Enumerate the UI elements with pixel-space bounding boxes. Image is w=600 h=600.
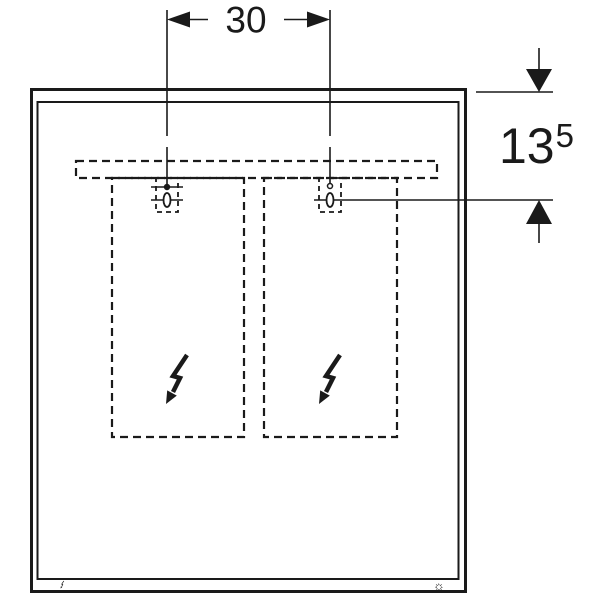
dimension-label-top-offset: 135 [499,121,574,171]
dimension-label-anchor-spacing: 30 [225,2,266,39]
right-anchor-hole [328,184,333,189]
dim-arrow-left [167,12,190,28]
technical-drawing-page: ☼ 30 135 [0,0,600,600]
dimension-value-13: 13 [499,118,555,174]
right-door-outline [264,178,397,437]
right-door-lightning-bolt-icon [319,355,340,404]
left-anchor-point [164,184,170,190]
left-door-outline [112,178,244,437]
left-anchor-slot [164,193,171,207]
bottom-left-power-icon [61,581,64,589]
mounting-rail-dashed [76,161,437,178]
dim-arrow-right [307,12,330,28]
dimension-value-30: 30 [225,0,266,41]
cabinet-inner-frame [38,102,459,579]
bottom-arrow [526,200,552,224]
cabinet-outline [32,90,466,592]
right-anchor-slot [327,193,334,207]
bottom-right-light-icon: ☼ [433,578,445,593]
top-arrow [526,69,552,92]
left-door-lightning-bolt-icon [166,355,187,404]
dimension-superscript-5: 5 [556,119,574,152]
technical-drawing: ☼ [0,0,600,600]
